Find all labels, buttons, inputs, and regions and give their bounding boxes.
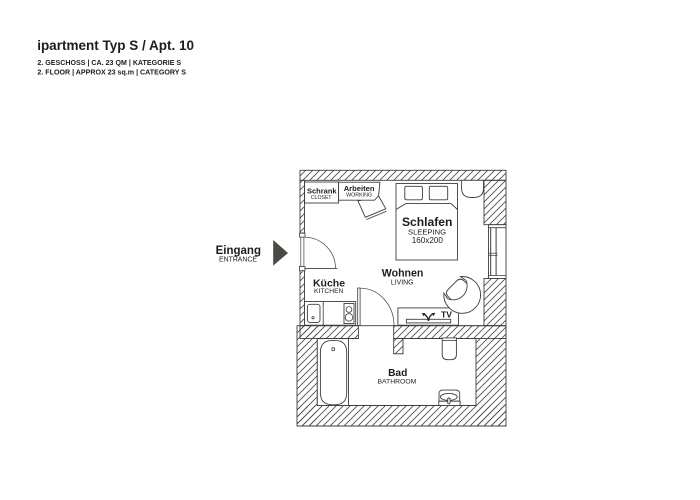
svg-text:Eingang: Eingang <box>216 245 261 257</box>
svg-text:BATHROOM: BATHROOM <box>378 379 417 386</box>
svg-text:WORKING: WORKING <box>346 193 372 199</box>
svg-text:LIVING: LIVING <box>391 279 414 286</box>
svg-text:Bad: Bad <box>388 368 407 379</box>
svg-text:TV: TV <box>441 310 452 320</box>
svg-text:KITCHEN: KITCHEN <box>314 288 344 295</box>
svg-text:160x200: 160x200 <box>412 236 444 245</box>
svg-text:2. GESCHOSS | CA. 23 QM | KATE: 2. GESCHOSS | CA. 23 QM | KATEGORIE S <box>37 59 181 67</box>
svg-text:2. FLOOR | APPROX 23 sq.m | CA: 2. FLOOR | APPROX 23 sq.m | CATEGORY S <box>37 69 186 77</box>
svg-text:Wohnen: Wohnen <box>382 268 424 280</box>
svg-text:ENTRANCE: ENTRANCE <box>219 256 257 263</box>
svg-text:CLOSET: CLOSET <box>311 195 333 201</box>
svg-text:ipartment Typ S / Apt. 10: ipartment Typ S / Apt. 10 <box>37 38 194 53</box>
